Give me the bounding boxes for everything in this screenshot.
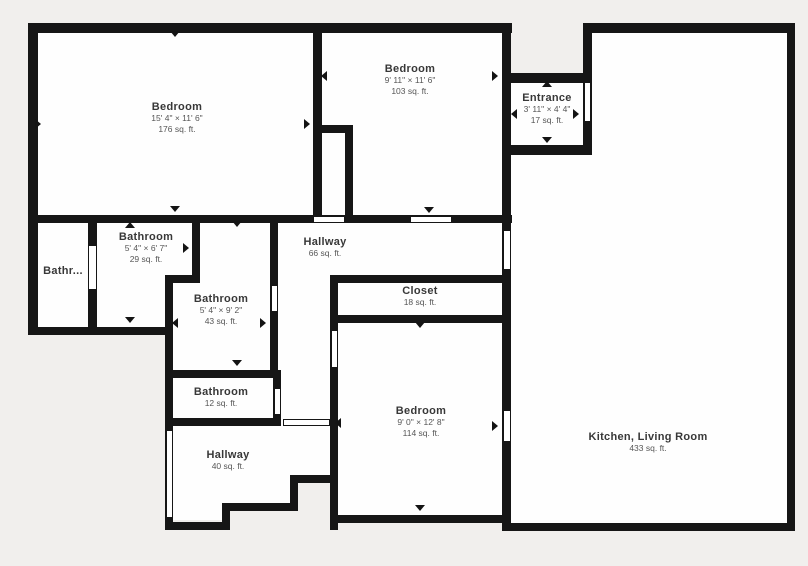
room-label-hallway-66: Hallway 66 sq. ft. [303, 236, 346, 259]
door-opening [166, 430, 173, 518]
room-name: Closet [402, 285, 437, 297]
door-arrow-icon [424, 207, 434, 213]
door-arrow-icon [260, 318, 266, 328]
door-opening [274, 388, 281, 415]
door-arrow-icon [573, 109, 579, 119]
wall [787, 23, 795, 531]
door-arrow-icon [492, 421, 498, 431]
door-arrow-icon [183, 243, 189, 253]
room-area: 103 sq. ft. [385, 86, 436, 97]
wall [345, 125, 353, 223]
room-area: 12 sq. ft. [194, 398, 248, 409]
room-label-bathroom-12: Bathroom 12 sq. ft. [194, 386, 248, 409]
wall [165, 522, 230, 530]
room-area: 66 sq. ft. [303, 248, 346, 259]
door-arrow-icon [304, 119, 310, 129]
room-area: 17 sq. ft. [522, 115, 571, 126]
room-dimensions: 5' 4" × 6' 7" [119, 243, 173, 254]
door-arrow-icon [492, 71, 498, 81]
wall [28, 327, 173, 335]
door-arrow-icon [125, 222, 135, 228]
room-area: 40 sq. ft. [206, 461, 249, 472]
floor-plan-page: { "colors": { "background": "#f1efed", "… [0, 0, 808, 566]
door-arrow-icon [415, 505, 425, 511]
door-opening [313, 216, 345, 223]
door-arrow-icon [335, 418, 341, 428]
door-opening [503, 230, 511, 270]
room-name: Bedroom [396, 405, 446, 417]
door-opening [584, 82, 591, 122]
room-label-bedroom-3: Bedroom 9' 0" × 12' 8" 114 sq. ft. [396, 405, 446, 439]
room-label-bedroom-2: Bedroom 9' 11" × 11' 6" 103 sq. ft. [385, 63, 436, 97]
room-area: 43 sq. ft. [194, 316, 248, 327]
wall [28, 23, 38, 335]
room-name: Hallway [206, 449, 249, 461]
room-dimensions: 3' 11" × 4' 4" [522, 104, 571, 115]
door-arrow-icon [321, 71, 327, 81]
room-label-bathroom-43: Bathroom 5' 4" × 9' 2" 43 sq. ft. [194, 293, 248, 327]
door-opening [271, 285, 278, 312]
door-arrow-icon [170, 31, 180, 37]
wall [290, 475, 337, 483]
wall [502, 23, 511, 523]
wall [330, 515, 511, 523]
room-floor [322, 133, 345, 215]
door-arrow-icon [125, 317, 135, 323]
room-dimensions: 9' 0" × 12' 8" [396, 417, 446, 428]
room-label-entrance: Entrance 3' 11" × 4' 4" 17 sq. ft. [522, 92, 571, 126]
wall [222, 503, 298, 511]
room-dimensions: 15' 4" × 11' 6" [151, 113, 202, 124]
wall [583, 23, 795, 33]
room-name: Bathroom [194, 386, 248, 398]
door-arrow-icon [542, 81, 552, 87]
room-label-closet: Closet 18 sq. ft. [402, 285, 437, 308]
door-arrow-icon [170, 206, 180, 212]
wall [192, 223, 200, 283]
door-arrow-icon [172, 318, 178, 328]
room-name: Kitchen, Living Room [588, 431, 707, 443]
room-name: Bedroom [385, 63, 436, 75]
door-opening [331, 330, 338, 368]
room-name: Bathroom [119, 231, 173, 243]
room-label-bedroom-master: Bedroom 15' 4" × 11' 6" 176 sq. ft. [151, 101, 202, 135]
room-area: 114 sq. ft. [396, 428, 446, 439]
room-name: Bathr... [43, 265, 83, 277]
room-floor [511, 155, 592, 523]
door-arrow-icon [232, 221, 242, 227]
room-area: 29 sq. ft. [119, 254, 173, 265]
wall [28, 23, 512, 33]
door-arrow-icon [35, 119, 41, 129]
door-opening [88, 245, 97, 290]
room-area: 433 sq. ft. [588, 443, 707, 454]
wall [502, 145, 592, 155]
room-name: Hallway [303, 236, 346, 248]
room-dimensions: 5' 4" × 9' 2" [194, 305, 248, 316]
room-label-hallway-40: Hallway 40 sq. ft. [206, 449, 249, 472]
floor-plan: Bedroom 15' 4" × 11' 6" 176 sq. ft. Bedr… [0, 0, 808, 566]
door-arrow-icon [511, 109, 517, 119]
door-arrow-icon [415, 322, 425, 328]
wall [330, 275, 511, 283]
room-name: Bedroom [151, 101, 202, 113]
room-area: 18 sq. ft. [402, 297, 437, 308]
room-floor [353, 125, 502, 215]
room-floor [173, 426, 222, 520]
room-label-bathroom-29: Bathroom 5' 4" × 6' 7" 29 sq. ft. [119, 231, 173, 265]
room-area: 176 sq. ft. [151, 124, 202, 135]
room-dimensions: 9' 11" × 11' 6" [385, 75, 436, 86]
room-name: Entrance [522, 92, 571, 104]
wall [502, 523, 795, 531]
wall [330, 283, 338, 530]
door-arrow-icon [542, 137, 552, 143]
wall [165, 418, 281, 426]
wall [165, 370, 281, 378]
door-arrow-icon [232, 360, 242, 366]
room-label-kitchen-living: Kitchen, Living Room 433 sq. ft. [588, 431, 707, 454]
wall [165, 275, 200, 283]
room-label-bathroom-left: Bathr... [43, 265, 83, 277]
door-opening [503, 410, 511, 442]
room-name: Bathroom [194, 293, 248, 305]
door-opening [410, 216, 452, 223]
door-opening [283, 419, 330, 426]
